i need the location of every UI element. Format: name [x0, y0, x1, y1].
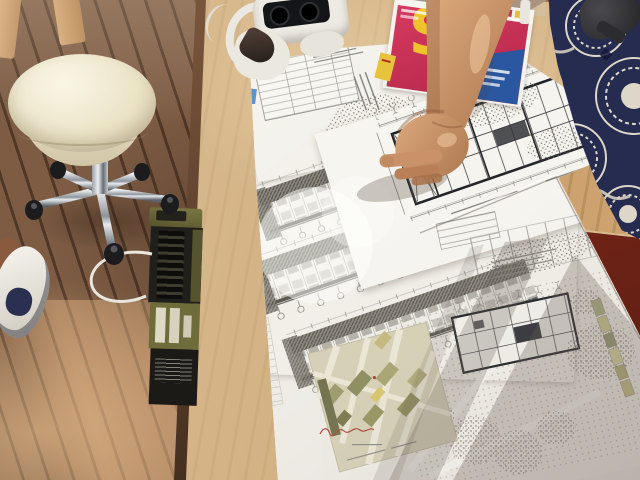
- radio-bottom: [149, 348, 199, 406]
- chair-leg-white: [519, 0, 530, 24]
- book[interactable]: S: [379, 0, 538, 114]
- label-mark: [382, 59, 391, 63]
- text-line: [469, 73, 505, 80]
- spine-text-line: [403, 0, 437, 3]
- vr-headset[interactable]: [222, 0, 354, 90]
- stool-seat[interactable]: [8, 54, 156, 152]
- radio-key: [155, 307, 166, 342]
- spine-text-line: [444, 3, 470, 9]
- radio-key: [183, 315, 192, 337]
- cover-glyph: S: [408, 5, 454, 70]
- lens-icon: [298, 1, 320, 23]
- headset-visor: [262, 0, 331, 29]
- spine-logo-red: [503, 9, 512, 17]
- photo-architect-table: S: [0, 0, 640, 480]
- cover-blue-panel: [448, 39, 525, 104]
- text-line: [470, 80, 500, 87]
- radio-label: [154, 358, 192, 383]
- radio-key-panel: [149, 302, 201, 350]
- lens-icon: [269, 4, 291, 26]
- sneaker-collar: [3, 285, 34, 318]
- radio-side-panel: [190, 230, 203, 302]
- radio-key: [169, 308, 180, 343]
